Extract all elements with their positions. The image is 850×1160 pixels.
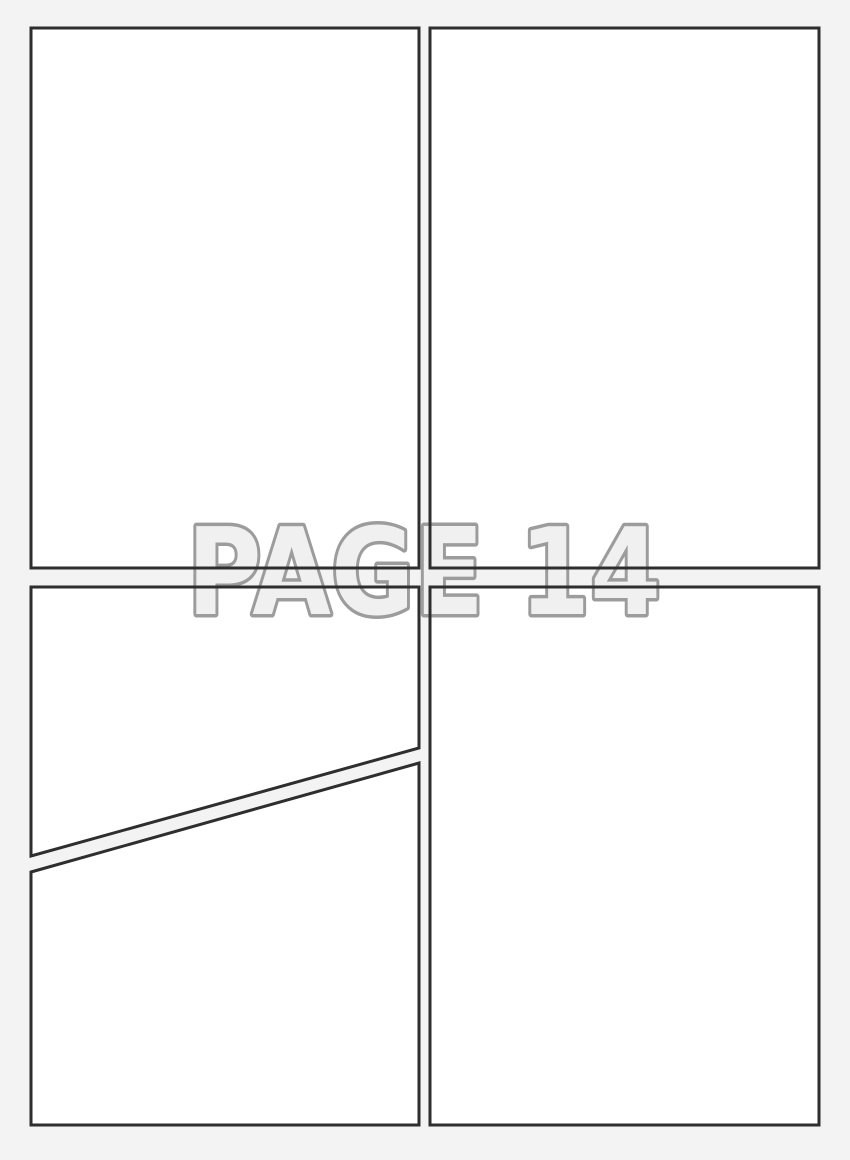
comic-panel-top-left-fill (31, 28, 419, 568)
comic-panel-bottom-right-fill (430, 587, 819, 1125)
page-number-watermark: PAGE 14 (187, 504, 661, 643)
comic-panel-top-right-fill (430, 28, 819, 568)
comic-page-template: PAGE 14 (0, 0, 850, 1160)
